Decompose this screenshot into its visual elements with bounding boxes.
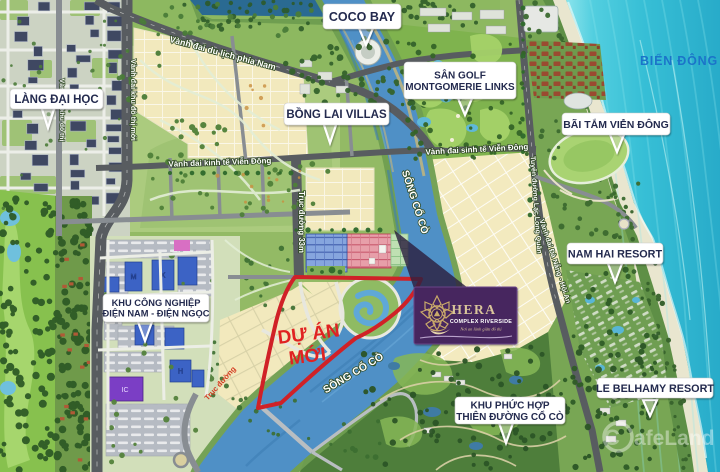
svg-text:Vành đai khu đô thị: Vành đai khu đô thị — [58, 79, 65, 142]
svg-text:IC: IC — [122, 387, 129, 394]
svg-text:MONTGOMERIE LINKS: MONTGOMERIE LINKS — [405, 82, 515, 93]
svg-text:HERA: HERA — [451, 302, 496, 317]
svg-text:M: M — [131, 274, 137, 281]
svg-text:H: H — [178, 369, 183, 376]
svg-text:BIỂN ĐÔNG: BIỂN ĐÔNG — [640, 53, 718, 68]
svg-text:COMPLEX RIVERSIDE: COMPLEX RIVERSIDE — [450, 319, 512, 325]
svg-text:LÀNG ĐẠI HỌC: LÀNG ĐẠI HỌC — [14, 93, 98, 106]
svg-text:KHU PHỨC HỢP: KHU PHỨC HỢP — [470, 398, 549, 411]
svg-text:Nơi an lành giữa đô thị: Nơi an lành giữa đô thị — [459, 327, 502, 332]
svg-text:KHU CÔNG NGHIỆP: KHU CÔNG NGHIỆP — [112, 297, 201, 308]
svg-text:Trục đường 33m: Trục đường 33m — [297, 191, 306, 253]
svg-text:THIÊN ĐƯỜNG CỔ CÒ: THIÊN ĐƯỜNG CỔ CÒ — [456, 410, 564, 423]
svg-text:C: C — [604, 425, 620, 450]
svg-text:afeLand: afeLand — [634, 427, 715, 450]
svg-text:NAM HAI RESORT: NAM HAI RESORT — [568, 248, 663, 260]
svg-text:MỚI: MỚI — [288, 343, 328, 369]
svg-text:ĐIỆN NAM - ĐIỆN NGỌC: ĐIỆN NAM - ĐIỆN NGỌC — [103, 308, 210, 319]
svg-text:LE BELHAMY RESORT: LE BELHAMY RESORT — [596, 383, 714, 395]
svg-text:Vành đai khu đô thị mới: Vành đai khu đô thị mới — [129, 59, 138, 141]
svg-text:BỒNG LAI VILLAS: BỒNG LAI VILLAS — [286, 108, 387, 121]
svg-text:COCO BAY: COCO BAY — [329, 10, 396, 24]
svg-text:BÃI TẮM VIỄN ĐÔNG: BÃI TẮM VIỄN ĐÔNG — [563, 118, 669, 131]
svg-text:SÂN GOLF: SÂN GOLF — [434, 68, 486, 81]
